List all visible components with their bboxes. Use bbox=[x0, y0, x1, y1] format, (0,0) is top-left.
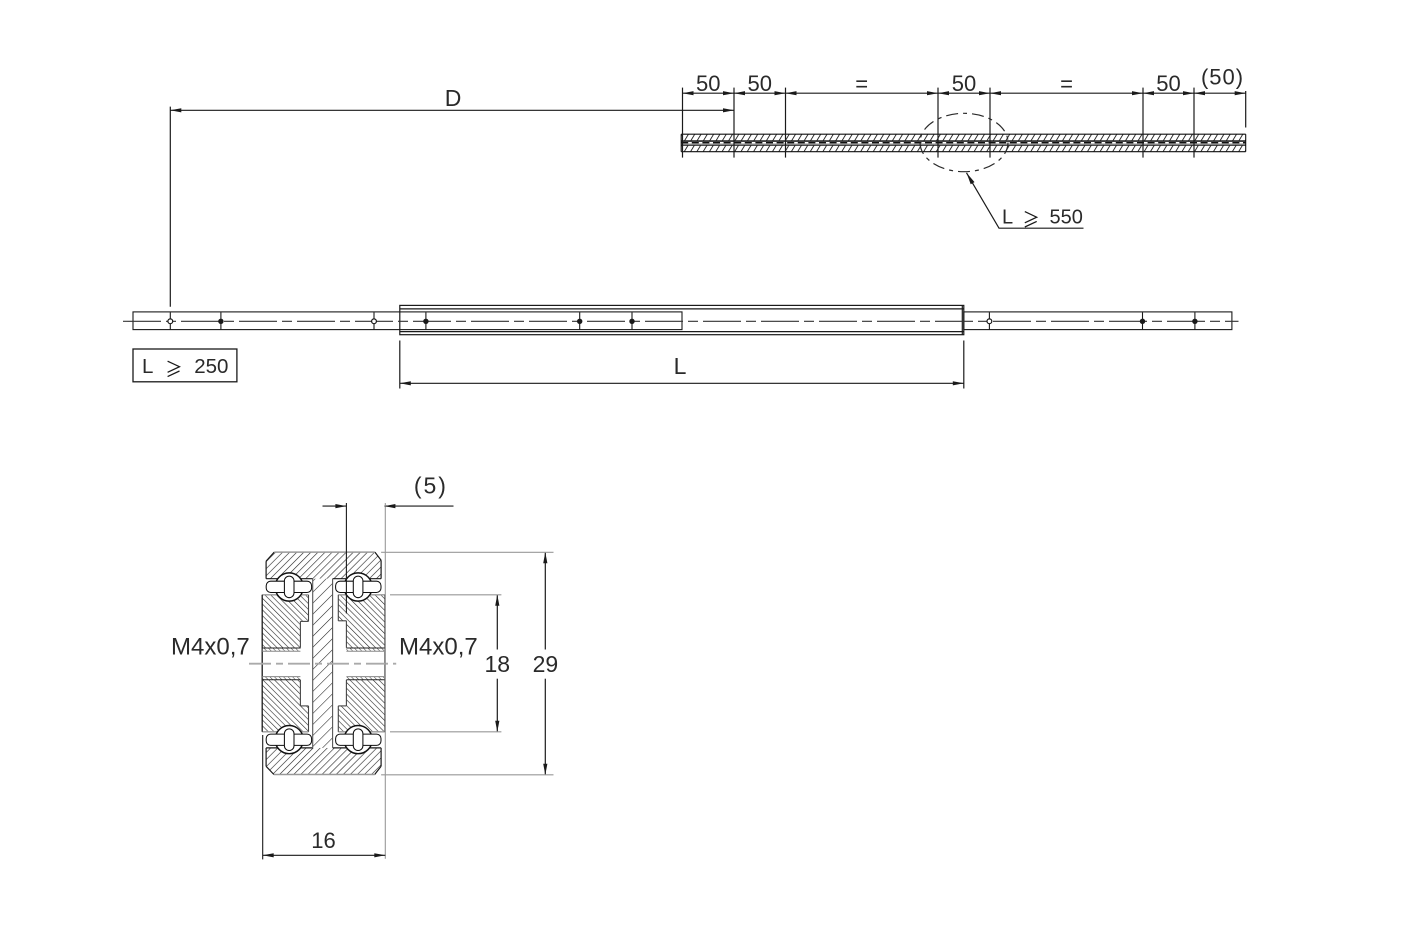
svg-text:M4x0,7: M4x0,7 bbox=[171, 633, 250, 660]
svg-text:M4x0,7: M4x0,7 bbox=[399, 634, 478, 661]
svg-text:16: 16 bbox=[311, 828, 335, 853]
svg-text:L: L bbox=[142, 355, 153, 378]
svg-text:=: = bbox=[855, 71, 868, 96]
svg-text:L: L bbox=[674, 353, 687, 379]
svg-text:L: L bbox=[1002, 207, 1013, 229]
svg-text:250: 250 bbox=[194, 355, 228, 378]
svg-text:18: 18 bbox=[485, 651, 511, 677]
svg-text:50: 50 bbox=[952, 71, 976, 96]
svg-text:29: 29 bbox=[533, 651, 559, 677]
svg-text:50: 50 bbox=[748, 71, 772, 96]
svg-text:550: 550 bbox=[1050, 207, 1083, 229]
svg-text:(5): (5) bbox=[414, 473, 448, 499]
svg-text:D: D bbox=[445, 85, 462, 111]
svg-text:50: 50 bbox=[1156, 71, 1180, 96]
svg-text:(50): (50) bbox=[1201, 65, 1244, 90]
svg-text:50: 50 bbox=[696, 71, 720, 96]
svg-text:=: = bbox=[1060, 71, 1073, 96]
